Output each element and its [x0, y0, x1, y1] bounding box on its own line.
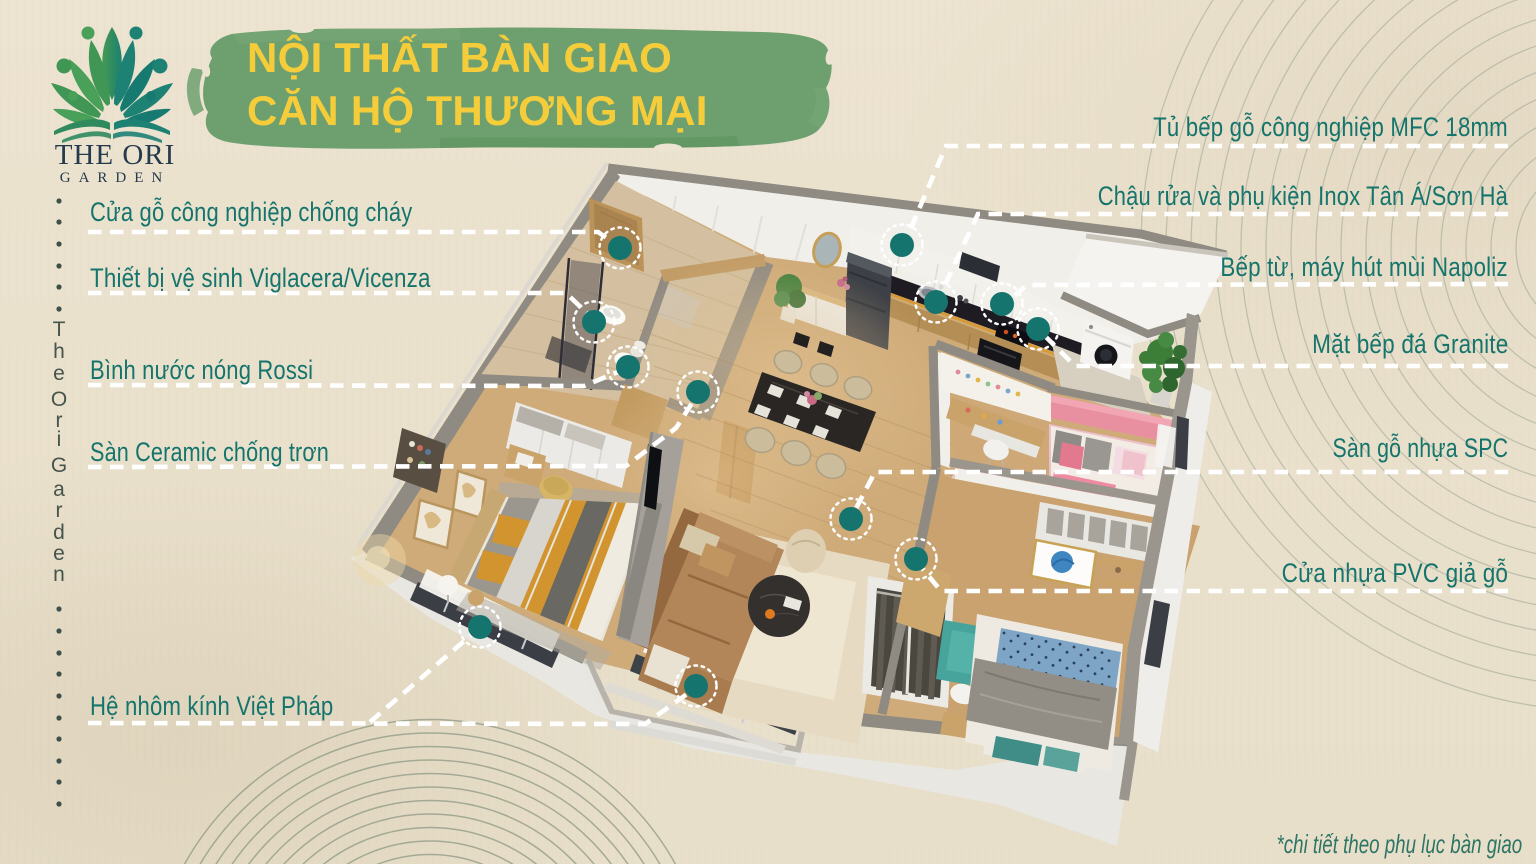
svg-text:h: h: [53, 340, 65, 363]
svg-text:T: T: [53, 318, 66, 341]
svg-text:G: G: [51, 454, 67, 477]
svg-text:e: e: [53, 542, 65, 565]
svg-text:r: r: [56, 499, 63, 522]
svg-text:O: O: [51, 388, 67, 411]
svg-text:n: n: [53, 563, 65, 586]
svg-text:i: i: [57, 428, 62, 451]
svg-text:d: d: [53, 521, 65, 544]
svg-text:e: e: [53, 362, 65, 385]
svg-text:a: a: [53, 478, 65, 501]
